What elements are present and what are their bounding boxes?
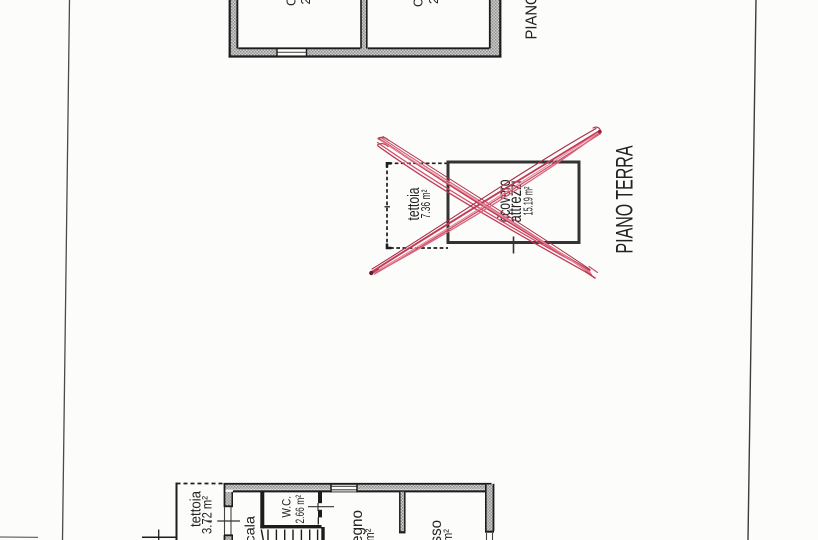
svg-text:m²: m² — [362, 528, 377, 540]
svg-text:15.19 m²: 15.19 m² — [522, 187, 536, 216]
svg-text:PIANO TERRA: PIANO TERRA — [612, 146, 639, 254]
svg-text:W.C.: W.C. — [280, 496, 294, 518]
svg-text:7.36 m²: 7.36 m² — [419, 190, 433, 219]
svg-text:3.72 m²: 3.72 m² — [200, 496, 215, 534]
svg-text:C: C — [412, 0, 426, 7]
svg-text:2.66 m²: 2.66 m² — [293, 495, 307, 524]
svg-text:PIANO: PIANO — [524, 0, 541, 40]
svg-text:scala: scala — [243, 515, 258, 540]
svg-text:C: C — [285, 0, 299, 6]
svg-text:m²: m² — [440, 528, 455, 540]
svg-text:2: 2 — [427, 0, 441, 4]
svg-text:2: 2 — [299, 0, 313, 5]
